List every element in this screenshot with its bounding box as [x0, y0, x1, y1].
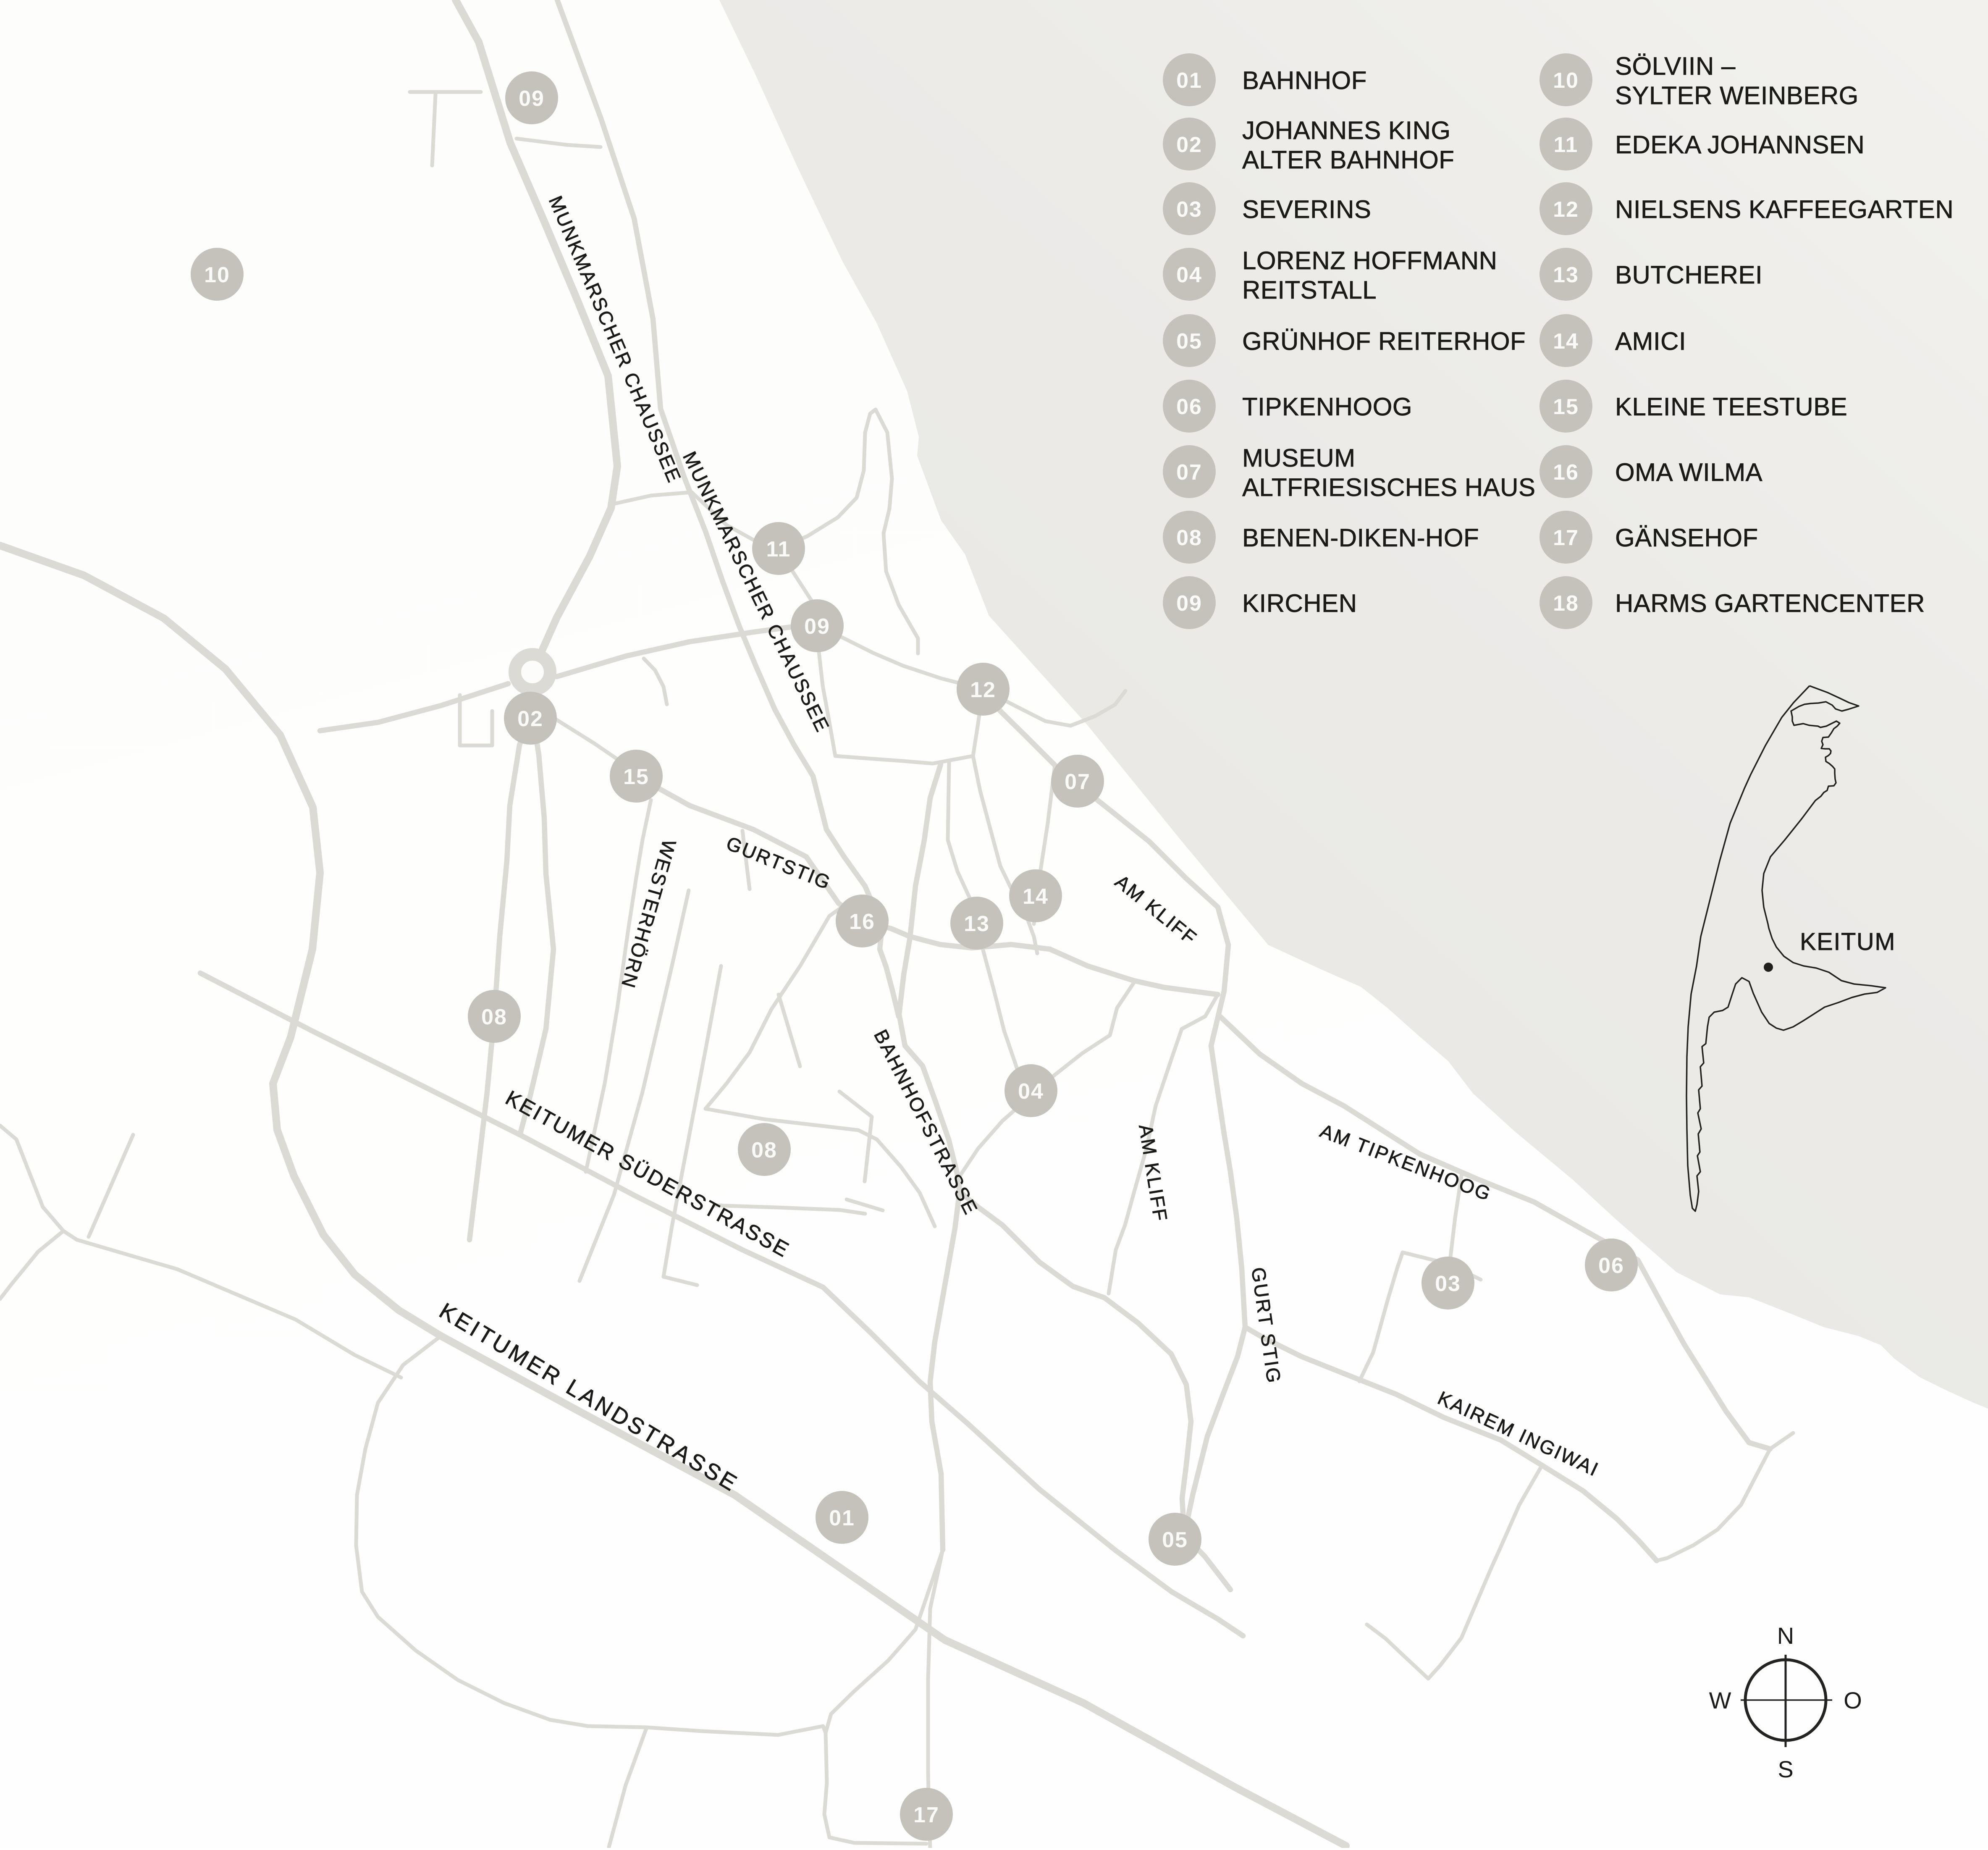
- svg-text:HARMS GARTENCENTER: HARMS GARTENCENTER: [1615, 589, 1925, 617]
- svg-text:06: 06: [1176, 395, 1202, 419]
- svg-text:09: 09: [519, 87, 545, 111]
- svg-text:05: 05: [1176, 329, 1202, 354]
- svg-text:13: 13: [1553, 263, 1579, 287]
- svg-text:05: 05: [1162, 1528, 1188, 1552]
- svg-text:REITSTALL: REITSTALL: [1242, 276, 1377, 304]
- svg-text:GRÜNHOF REITERHOF: GRÜNHOF REITERHOF: [1242, 327, 1526, 355]
- svg-text:08: 08: [751, 1138, 777, 1162]
- svg-text:SYLTER WEINBERG: SYLTER WEINBERG: [1615, 81, 1859, 110]
- svg-text:13: 13: [964, 912, 990, 936]
- svg-text:09: 09: [1176, 591, 1202, 616]
- svg-text:14: 14: [1023, 884, 1049, 909]
- svg-text:14: 14: [1553, 329, 1579, 354]
- svg-text:04: 04: [1176, 263, 1202, 287]
- svg-text:11: 11: [1554, 133, 1579, 157]
- svg-text:07: 07: [1065, 770, 1091, 794]
- svg-text:04: 04: [1018, 1079, 1044, 1104]
- svg-text:01: 01: [1176, 68, 1202, 93]
- svg-text:11: 11: [766, 537, 791, 562]
- svg-text:MUSEUM: MUSEUM: [1242, 444, 1356, 472]
- svg-text:15: 15: [623, 765, 649, 789]
- svg-text:AMICI: AMICI: [1615, 327, 1686, 355]
- svg-text:ALTFRIESISCHES HAUS: ALTFRIESISCHES HAUS: [1242, 473, 1536, 501]
- svg-text:01: 01: [829, 1506, 855, 1530]
- svg-text:ALTER BAHNHOF: ALTER BAHNHOF: [1242, 146, 1454, 174]
- svg-text:TIPKENHOOG: TIPKENHOOG: [1242, 393, 1412, 421]
- svg-text:17: 17: [913, 1803, 939, 1827]
- svg-text:SÖLVIIN –: SÖLVIIN –: [1615, 52, 1736, 80]
- svg-text:BUTCHEREI: BUTCHEREI: [1615, 261, 1762, 289]
- svg-text:KLEINE TEESTUBE: KLEINE TEESTUBE: [1615, 393, 1847, 421]
- svg-text:GÄNSEHOF: GÄNSEHOF: [1615, 524, 1758, 552]
- svg-text:JOHANNES KING: JOHANNES KING: [1242, 116, 1451, 144]
- svg-text:16: 16: [849, 910, 875, 934]
- svg-text:O: O: [1844, 1687, 1862, 1714]
- svg-text:02: 02: [517, 707, 543, 731]
- svg-text:W: W: [1709, 1687, 1731, 1714]
- svg-text:06: 06: [1598, 1254, 1624, 1278]
- svg-text:SEVERINS: SEVERINS: [1242, 195, 1371, 223]
- svg-text:OMA WILMA: OMA WILMA: [1615, 458, 1762, 486]
- svg-text:07: 07: [1176, 460, 1202, 485]
- svg-text:NIELSENS KAFFEEGARTEN: NIELSENS KAFFEEGARTEN: [1615, 195, 1954, 223]
- svg-text:N: N: [1777, 1622, 1794, 1649]
- svg-text:09: 09: [804, 614, 830, 639]
- svg-text:15: 15: [1553, 395, 1579, 419]
- svg-text:12: 12: [970, 678, 996, 702]
- svg-text:12: 12: [1553, 197, 1579, 222]
- svg-text:KIRCHEN: KIRCHEN: [1242, 589, 1357, 617]
- svg-text:16: 16: [1553, 460, 1579, 485]
- svg-text:08: 08: [481, 1005, 507, 1029]
- svg-text:10: 10: [1553, 68, 1579, 93]
- svg-text:08: 08: [1176, 526, 1202, 550]
- svg-text:18: 18: [1553, 591, 1579, 616]
- svg-text:03: 03: [1176, 197, 1202, 222]
- svg-text:10: 10: [204, 263, 230, 287]
- svg-text:S: S: [1778, 1756, 1793, 1782]
- svg-text:17: 17: [1553, 526, 1579, 550]
- svg-text:03: 03: [1435, 1272, 1461, 1296]
- svg-text:KEITUM: KEITUM: [1800, 928, 1896, 955]
- svg-text:02: 02: [1176, 133, 1202, 157]
- svg-text:EDEKA JOHANNSEN: EDEKA JOHANNSEN: [1615, 131, 1865, 159]
- svg-text:BAHNHOF: BAHNHOF: [1242, 66, 1367, 94]
- svg-text:LORENZ HOFFMANN: LORENZ HOFFMANN: [1242, 247, 1498, 275]
- svg-text:BENEN-DIKEN-HOF: BENEN-DIKEN-HOF: [1242, 524, 1479, 552]
